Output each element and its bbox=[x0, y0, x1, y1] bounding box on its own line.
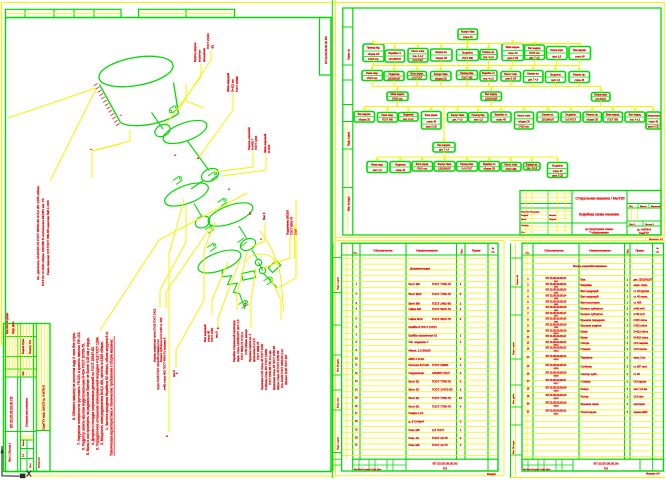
svg-text:Ст3 ГОСТ: Ст3 ГОСТ bbox=[412, 77, 423, 80]
svg-text:Привод бар.: Привод бар. bbox=[460, 163, 474, 166]
svg-text:ГОСТ 10-75: ГОСТ 10-75 bbox=[432, 436, 448, 440]
svg-text:Инв. № дубл.: Инв. № дубл. bbox=[337, 358, 340, 372]
svg-text:узел 2 СБ: узел 2 СБ bbox=[648, 126, 659, 129]
svg-text:Резь М8: Резь М8 bbox=[409, 428, 420, 432]
svg-text:сборка СБ: сборка СБ bbox=[586, 119, 598, 122]
svg-text:Подвеска: Подвеска bbox=[389, 73, 400, 76]
svg-text:Блок управ.: Блок управ. bbox=[425, 114, 438, 117]
svg-text:Крышка задняя: Крышка задняя bbox=[581, 324, 602, 328]
svg-text:Эл.двигат.: Эл.двигат. bbox=[565, 114, 577, 117]
svg-text:дет. 7 ч.3: дет. 7 ч.3 bbox=[452, 119, 463, 122]
svg-text:КП 23.05.09.00.07: КП 23.05.09.00.07 bbox=[546, 312, 567, 315]
svg-text:сборка СБ: сборка СБ bbox=[483, 168, 495, 171]
svg-text:гр. 4-ИТФ-5: гр. 4-ИТФ-5 bbox=[637, 228, 651, 232]
svg-text:КП 23.05.09.00.00 ВО: КП 23.05.09.00.00 ВО bbox=[324, 35, 328, 64]
svg-text:Насос слив.: Насос слив. bbox=[504, 73, 518, 76]
svg-text:КП 23.05.09.00.02: КП 23.05.09.00.02 bbox=[546, 341, 567, 344]
svg-text:Пружина: Пружина bbox=[581, 355, 593, 359]
svg-text:Корпус бака: Корпус бака bbox=[451, 114, 465, 117]
svg-text:8. Обкатать машину на холостом: 8. Обкатать машину на холостом ходу 2 ча… bbox=[72, 332, 76, 420]
svg-text:z=40 m=2: z=40 m=2 bbox=[634, 313, 646, 316]
svg-text:Планка: Планка bbox=[581, 347, 591, 351]
svg-text:Копировал: Копировал bbox=[39, 456, 41, 468]
svg-text:Бак наружн.: Бак наружн. bbox=[573, 49, 587, 52]
svg-text:резина МБС: резина МБС bbox=[634, 411, 648, 414]
svg-text:КП 23.05.09.00.04: КП 23.05.09.00.04 bbox=[546, 355, 567, 358]
svg-text:Наименование: Наименование bbox=[416, 249, 438, 253]
svg-text:поз. 4 л.2: поз. 4 л.2 bbox=[630, 119, 641, 122]
svg-text:ГОСТ 7796-70: ГОСТ 7796-70 bbox=[432, 396, 451, 400]
svg-text:Т-образование: Т-образование bbox=[589, 231, 609, 235]
svg-text:180205 ГОСТ: 180205 ГОСТ bbox=[432, 371, 450, 375]
svg-text:лист 1,5: лист 1,5 bbox=[551, 79, 561, 82]
svg-text:КП 23.05.09.00.00: КП 23.05.09.00.00 bbox=[546, 402, 567, 405]
svg-text:КП 23.05.09.00.03: КП 23.05.09.00.03 bbox=[546, 289, 567, 292]
svg-text:7. Наружные поверхности грунто: 7. Наружные поверхности грунтовать ГФ-02… bbox=[77, 331, 81, 445]
svg-text:Ст3 сварная: Ст3 сварная bbox=[634, 342, 649, 345]
svg-text:Стиральная машина / МыТ90: Стиральная машина / МыТ90 bbox=[575, 197, 624, 201]
svg-text:1. Частота вращения барабана 5: 1. Частота вращения барабана 50 об/мин, … bbox=[105, 331, 109, 430]
svg-text:лист 1,5 мм: лист 1,5 мм bbox=[634, 388, 648, 391]
svg-text:Корпус бака: Корпус бака bbox=[438, 163, 452, 166]
svg-text:сборка СБ: сборка СБ bbox=[518, 121, 530, 124]
svg-text:поз. 4 л.2: поз. 4 л.2 bbox=[413, 55, 424, 58]
svg-text:Уплотнение: Уплотнение bbox=[581, 410, 597, 414]
svg-text:КП 23.05.09.00.05: КП 23.05.09.00.05 bbox=[546, 364, 567, 367]
svg-text:ст. 45 поков.: ст. 45 поков. bbox=[634, 296, 649, 299]
svg-text:Клапан вп.: Клапан вп. bbox=[527, 73, 539, 76]
svg-text:Болт М10: Болт М10 bbox=[409, 292, 422, 296]
svg-text:Винт М6: Винт М6 bbox=[409, 302, 421, 306]
svg-text:Клапан вп.: Клапан вп. bbox=[542, 114, 554, 117]
svg-text:Крышка передняя: Крышка передняя bbox=[581, 318, 606, 322]
svg-text:ГОСТ 10-75: ГОСТ 10-75 bbox=[432, 443, 448, 447]
svg-text:3. Передаточное отношение клин: 3. Передаточное отношение клиноременной … bbox=[96, 336, 100, 450]
svg-text:Взам. инв.: Взам. инв. bbox=[338, 397, 340, 408]
svg-text:z=80 m=2: z=80 m=2 bbox=[634, 307, 646, 310]
svg-text:Пров.: Пров. bbox=[521, 219, 527, 221]
svg-text:Шпонка 8х7х40: Шпонка 8х7х40 bbox=[409, 363, 430, 367]
svg-text:Насос слив.: Насос слив. bbox=[411, 50, 425, 53]
svg-text:Масштаб: Масштаб bbox=[651, 206, 661, 208]
svg-text:Н.контр.: Н.контр. bbox=[521, 225, 529, 227]
svg-text:КП 23.05.09.00.03: КП 23.05.09.00.03 bbox=[546, 347, 567, 350]
svg-text:Шкив ведом.: Шкив ведом. bbox=[506, 46, 520, 49]
svg-text:D=315: D=315 bbox=[267, 144, 271, 153]
svg-text:Ст3 полоса: Ст3 полоса bbox=[634, 348, 648, 351]
svg-text:Листов 1: Листов 1 bbox=[645, 224, 655, 226]
svg-text:ГОСТ 7798-70: ГОСТ 7798-70 bbox=[432, 292, 451, 296]
svg-text:Изм Лист № докум. Подп. Дата: Изм Лист № докум. Подп. Дата bbox=[354, 468, 382, 471]
svg-text:Манж. 1.2-30х52: Манж. 1.2-30х52 bbox=[409, 349, 431, 353]
svg-text:КП 23.05.09.00.07: КП 23.05.09.00.07 bbox=[546, 379, 567, 382]
svg-text:узел 2 СБ: узел 2 СБ bbox=[507, 57, 518, 60]
svg-text:СЧ15 литье: СЧ15 литье bbox=[634, 319, 648, 322]
svg-text:сталь 45: сталь 45 bbox=[553, 170, 563, 173]
svg-text:стр.: стр. bbox=[491, 252, 495, 254]
svg-text:Блок управ.: Блок управ. bbox=[410, 73, 423, 76]
svg-text:Болт М8: Болт М8 bbox=[409, 282, 421, 286]
svg-text:д. 8 СтЗкп4: д. 8 СтЗкп4 bbox=[409, 420, 425, 424]
svg-text:Шплинт 2х20 ГОСТ 397: Шплинт 2х20 ГОСТ 397 bbox=[284, 354, 288, 385]
svg-text:сталь 45: сталь 45 bbox=[508, 52, 518, 55]
svg-text:Эл.двигат.: Эл.двигат. bbox=[552, 165, 564, 168]
svg-text:Винт 25: Винт 25 bbox=[409, 388, 420, 392]
svg-text:Подвеска: Подвеска bbox=[403, 114, 414, 117]
svg-text:Справ. №: Справ. № bbox=[516, 274, 519, 285]
svg-text:Вал II: Вал II bbox=[262, 212, 266, 220]
svg-text:КП 23.05.09.00.06: КП 23.05.09.00.06 bbox=[546, 306, 567, 309]
svg-text:Вновь разрабатываемые: Вновь разрабатываемые bbox=[573, 264, 607, 268]
svg-text:Н.контр. Утв.: Н.контр. Утв. bbox=[29, 339, 32, 354]
svg-text:поз. 4 л.2: поз. 4 л.2 bbox=[527, 167, 538, 170]
svg-text:0016: 0016 bbox=[554, 375, 560, 377]
svg-text:Стиральная машина: Стиральная машина bbox=[25, 398, 29, 427]
svg-text:Ремень пр.: Ремень пр. bbox=[586, 114, 599, 117]
svg-text:Привод бар.: Привод бар. bbox=[471, 114, 485, 117]
svg-text:Вал ведущ.: Вал ведущ. bbox=[629, 114, 642, 117]
svg-text:Крышка люка: Крышка люка bbox=[581, 402, 600, 406]
svg-text:ГОСТ 380: ГОСТ 380 bbox=[462, 57, 473, 60]
svg-text:Болт 20: Болт 20 bbox=[409, 380, 420, 384]
svg-text:втулочно-: втулочно- bbox=[198, 49, 202, 62]
svg-text:ГОСТ 7798-70: ГОСТ 7798-70 bbox=[432, 404, 451, 408]
svg-text:Эл. двигатель 4А100S4 УЗ ГОСТ: Эл. двигатель 4А100S4 УЗ ГОСТ 28330-89 N… bbox=[36, 186, 40, 280]
svg-text:12Х18Н10Т: 12Х18Н10Т bbox=[485, 97, 498, 100]
svg-text:КП 23.05.09.00.02: КП 23.05.09.00.02 bbox=[546, 283, 567, 286]
svg-text:лист 1,5: лист 1,5 bbox=[474, 119, 484, 122]
svg-text:ГОСТ 380: ГОСТ 380 bbox=[462, 76, 473, 79]
svg-text:12Х18Н10Т: 12Х18Н10Т bbox=[388, 77, 401, 80]
svg-text:Барабан ст.: Барабан ст. bbox=[483, 163, 496, 166]
svg-text:12Х18Н10Т: 12Х18Н10Т bbox=[438, 168, 451, 171]
svg-text:поз. 4 л.2: поз. 4 л.2 bbox=[483, 56, 494, 59]
svg-text:ст. 65Г лист: ст. 65Г лист bbox=[634, 365, 648, 368]
svg-text:Вал ведущ.: Вал ведущ. bbox=[485, 93, 498, 96]
svg-text:поз. 4 л.2: поз. 4 л.2 bbox=[403, 118, 414, 121]
svg-text:Шкив ведом.: Шкив ведом. bbox=[390, 93, 404, 96]
svg-text:Рама сварная Ст3 ГОСТ 380-88 ш: Рама сварная Ст3 ГОСТ 380-88 швеллер №8 … bbox=[46, 200, 50, 275]
svg-text:Разраб.: Разраб. bbox=[521, 215, 529, 217]
svg-text:Масса: Масса bbox=[640, 206, 647, 208]
svg-text:дет. 7 ч.3: дет. 7 ч.3 bbox=[439, 149, 450, 152]
svg-text:ПЗ: ПЗ bbox=[604, 466, 608, 470]
svg-text:Корпус бака: Корпус бака bbox=[461, 31, 475, 34]
svg-text:-93: -93 bbox=[211, 45, 215, 49]
svg-text:Утв.: Утв. bbox=[521, 232, 525, 234]
svg-text:Лист: Лист bbox=[30, 463, 32, 468]
svg-text:Рd 5 Вл п=1500 об/мин 220/380: Рd 5 Вл п=1500 об/мин 220/380 В исполнен… bbox=[41, 198, 45, 286]
svg-text:Опора: Опора bbox=[581, 341, 590, 345]
svg-text:D=112 мм: D=112 мм bbox=[231, 79, 235, 92]
svg-text:Болт 20: Болт 20 bbox=[409, 396, 420, 400]
svg-text:нерж. сталь: нерж. сталь bbox=[634, 284, 648, 287]
svg-text:дет. 7 ч.3: дет. 7 ч.3 bbox=[529, 56, 540, 59]
svg-text:ГОСТ 17473-80: ГОСТ 17473-80 bbox=[432, 388, 453, 392]
svg-text:ГОСТ 21424: ГОСТ 21424 bbox=[206, 33, 210, 49]
svg-text:Подп. и дата: Подп. и дата bbox=[338, 436, 340, 450]
svg-text:сборка СБ: сборка СБ bbox=[435, 77, 447, 80]
svg-text:12Х18Н10Т: 12Х18Н10Т bbox=[541, 119, 554, 122]
svg-text:Барабан: Барабан bbox=[581, 283, 593, 287]
svg-text:Инв. № подл.: Инв. № подл. bbox=[512, 440, 515, 454]
svg-text:пров. 2 кл.: пров. 2 кл. bbox=[634, 356, 647, 359]
svg-text:Насос слив.: Насос слив. bbox=[517, 114, 531, 117]
svg-text:Ст3 ГОСТ: Ст3 ГОСТ bbox=[565, 119, 576, 122]
svg-text:Барабан ст.: Барабан ст. bbox=[388, 52, 401, 55]
svg-text:Наименование: Наименование bbox=[589, 249, 611, 253]
svg-text:Ст3 ГОСТ: Ст3 ГОСТ bbox=[595, 98, 606, 101]
svg-text:Инв. дубл.: Инв. дубл. bbox=[513, 393, 515, 404]
svg-text:Гайка М8: Гайка М8 bbox=[409, 307, 422, 311]
svg-text:Вал ведущий: Вал ведущий bbox=[581, 289, 599, 293]
svg-text:КП 23.05.09.00.05: КП 23.05.09.00.05 bbox=[546, 300, 567, 303]
svg-text:Ст3 лист: Ст3 лист bbox=[634, 395, 645, 398]
svg-text:Бак наружн.: Бак наружн. bbox=[358, 113, 372, 116]
svg-text:D=112 литье: D=112 литье bbox=[634, 331, 649, 334]
svg-text:дет. 12Х18Н10Т: дет. 12Х18Н10Т bbox=[634, 278, 653, 281]
svg-text:сталь 45: сталь 45 bbox=[648, 121, 658, 124]
svg-text:0018: 0018 bbox=[554, 390, 560, 392]
svg-text:Ст3 ГОСТ: Ст3 ГОСТ bbox=[462, 168, 473, 171]
svg-text:Разраб. Пров.: Разраб. Пров. bbox=[22, 338, 25, 354]
svg-text:5. Валы и оси проверить на рад: 5. Валы и оси проверить на радиальное би… bbox=[86, 337, 90, 455]
svg-text:0013: 0013 bbox=[554, 350, 560, 352]
svg-text:4. Допуски и посадки сопрягаем: 4. Допуски и посадки сопрягаемых деталей… bbox=[91, 346, 95, 445]
svg-text:Поз.: Поз. bbox=[354, 253, 358, 255]
svg-text:поз.5: поз.5 bbox=[172, 370, 176, 377]
svg-text:КП 23.05.09.00.08: КП 23.05.09.00.08 bbox=[546, 387, 567, 390]
svg-text:сборка СБ: сборка СБ bbox=[358, 118, 370, 121]
svg-text:ГОСТ 380: ГОСТ 380 bbox=[506, 168, 517, 171]
svg-text:ПЗ: ПЗ bbox=[443, 466, 447, 470]
svg-text:0019: 0019 bbox=[554, 398, 560, 400]
svg-text:СЧ15 отл.: СЧ15 отл. bbox=[417, 168, 428, 171]
svg-text:Стяжка: Стяжка bbox=[581, 379, 591, 383]
svg-text:Ремень пр.: Ремень пр. bbox=[573, 73, 586, 76]
svg-text:Шкив: Шкив bbox=[581, 335, 589, 339]
svg-text:0017: 0017 bbox=[554, 383, 560, 385]
svg-text:СЧ15 отл.: СЧ15 отл. bbox=[392, 97, 403, 100]
svg-text:ГОСТ 7798-70: ГОСТ 7798-70 bbox=[432, 282, 451, 286]
svg-text:2 шт: 2 шт bbox=[294, 228, 298, 235]
svg-text:КП 23.05.09.00.00 ПЗ: КП 23.05.09.00.00 ПЗ bbox=[10, 397, 14, 428]
svg-text:Приме-: Приме- bbox=[472, 249, 481, 253]
svg-text:Подп. и дата: Подп. и дата bbox=[348, 131, 351, 146]
svg-text:Техническая характеристика и т: Техническая характеристика и технические… bbox=[110, 339, 114, 456]
svg-text:Подп. и дата: Подп. и дата bbox=[338, 276, 340, 290]
svg-text:КП 23.05.09.00.08: КП 23.05.09.00.08 bbox=[546, 318, 567, 321]
svg-text:Клапан вп.: Клапан вп. bbox=[435, 51, 447, 54]
svg-text:Лит.: Лит. bbox=[22, 371, 25, 376]
svg-text:Приме-: Приме- bbox=[636, 249, 645, 253]
svg-text:узел 2 СБ: узел 2 СБ bbox=[505, 78, 516, 81]
svg-text:Бак наружн.: Бак наружн. bbox=[437, 144, 451, 147]
svg-text:ГОСТ 20889: ГОСТ 20889 bbox=[235, 76, 239, 92]
svg-text:Барабан ст.: Барабан ст. bbox=[495, 114, 508, 117]
svg-text:Колесо зубчатое: Колесо зубчатое bbox=[581, 306, 604, 310]
svg-text:Изм Лист № докум.: Изм Лист № докум. bbox=[521, 211, 540, 214]
svg-text:Резь 10: Резь 10 bbox=[409, 436, 420, 440]
svg-text:Подшипник: Подшипник bbox=[409, 371, 425, 375]
svg-text:Вал ведомый: Вал ведомый bbox=[581, 295, 599, 299]
svg-text:Рамка п.13: Рамка п.13 bbox=[409, 411, 424, 415]
svg-text:ГОСТ 380: ГОСТ 380 bbox=[607, 119, 618, 122]
svg-text:Шайба 8 ГОСТ 11371: Шайба 8 ГОСТ 11371 bbox=[409, 325, 438, 329]
svg-text:Справ. №: Справ. № bbox=[348, 49, 351, 60]
svg-text:0020: 0020 bbox=[554, 405, 560, 407]
svg-text:Подп. Дата: Подп. Дата bbox=[12, 321, 15, 334]
svg-text:Инв. № подл.: Инв. № подл. bbox=[348, 196, 351, 211]
svg-text:Формат А4: Формат А4 bbox=[646, 472, 660, 476]
svg-text:Вал-шестерня: Вал-шестерня bbox=[581, 301, 601, 305]
svg-text:СЧ15 литье: СЧ15 литье bbox=[634, 325, 648, 328]
svg-text:Шайба пружинная 10: Шайба пружинная 10 bbox=[409, 333, 438, 337]
svg-text:КП 23.05.09.00.09: КП 23.05.09.00.09 bbox=[546, 324, 567, 327]
svg-text:КП 23.05.09.00.06: КП 23.05.09.00.06 bbox=[546, 372, 567, 375]
svg-text:Петров: Петров bbox=[549, 219, 557, 221]
svg-text:Насос слив.: Насос слив. bbox=[504, 164, 518, 167]
svg-text:Обозначение: Обозначение bbox=[544, 249, 563, 253]
svg-text:КП 23.05.09.00.00: КП 23.05.09.00.00 bbox=[433, 461, 458, 465]
svg-text:СЧ15 отл.: СЧ15 отл. bbox=[367, 77, 378, 80]
svg-text:КП 23.05.09.00.01: КП 23.05.09.00.01 bbox=[546, 277, 567, 280]
svg-text:Гайка М10: Гайка М10 bbox=[409, 317, 423, 321]
svg-text:Рычаг: Рычаг bbox=[581, 394, 589, 398]
svg-text:Подп. и дата: Подп. и дата bbox=[513, 341, 515, 355]
svg-text:оргстекло: оргстекло bbox=[634, 403, 646, 406]
svg-text:КП 23.05.09.00.00: КП 23.05.09.00.00 bbox=[546, 329, 567, 332]
svg-text:ст. 45 кругляк: ст. 45 кругляк bbox=[634, 290, 650, 293]
svg-text:Шкив ведом.: Шкив ведом. bbox=[606, 114, 620, 117]
svg-text:Изм Лист № докум.: Изм Лист № докум. bbox=[6, 312, 9, 334]
svg-text:КП 23.05.09.00.01: КП 23.05.09.00.01 bbox=[546, 335, 567, 338]
svg-text:КП 23.05.09.00.01: КП 23.05.09.00.01 bbox=[546, 410, 567, 413]
svg-text:Собачка: Собачка bbox=[581, 364, 593, 368]
svg-text:2,5 ГОСТ: 2,5 ГОСТ bbox=[432, 428, 444, 432]
svg-text:Колесо зубчатое: Колесо зубчатое bbox=[581, 312, 604, 316]
svg-text:Резь М3: Резь М3 bbox=[409, 443, 420, 447]
svg-text:поз. 4 л.2: поз. 4 л.2 bbox=[483, 77, 494, 80]
svg-text:узел 2 СБ: узел 2 СБ bbox=[552, 174, 563, 177]
svg-text:ГОСТ 380: ГОСТ 380 bbox=[382, 119, 393, 122]
svg-text:Шкив: Шкив bbox=[581, 330, 589, 334]
svg-text:Блок управ.: Блок управ. bbox=[416, 163, 429, 166]
svg-text:узел 2 СБ: узел 2 СБ bbox=[426, 126, 437, 129]
svg-text:Рама свар.: Рама свар. bbox=[366, 72, 379, 75]
svg-text:ГОСТ 1050: ГОСТ 1050 bbox=[210, 327, 214, 342]
svg-text:Ст3 ГОСТ: Ст3 ГОСТ bbox=[413, 59, 424, 62]
svg-text:стр.: стр. bbox=[656, 252, 660, 254]
svg-text:Обозначение: Обозначение bbox=[373, 249, 392, 253]
svg-text:ГОСТ 5915-70: ГОСТ 5915-70 bbox=[432, 317, 451, 321]
svg-text:КП 23.05.09.00.09: КП 23.05.09.00.09 bbox=[546, 394, 567, 397]
svg-text:Эл.двигат.: Эл.двигат. bbox=[550, 73, 562, 76]
svg-text:Барабан ст.: Барабан ст. bbox=[482, 72, 495, 75]
svg-text:ГОСТ 5915-70: ГОСТ 5915-70 bbox=[432, 307, 451, 311]
svg-text:6. Редуктор залить маслом инду: 6. Редуктор залить маслом индустриальным… bbox=[82, 343, 86, 450]
svg-text:Иванов: Иванов bbox=[549, 215, 557, 217]
svg-text:МКБ 4 В-20: МКБ 4 В-20 bbox=[409, 357, 425, 361]
svg-text:лист 1,5: лист 1,5 bbox=[552, 55, 562, 58]
svg-text:Рама свар.: Рама свар. bbox=[371, 163, 384, 166]
svg-text:Изм Лист № докум. Подп. Дата: Изм Лист № докум. Подп. Дата bbox=[523, 468, 551, 471]
svg-text:Кожух: Кожух bbox=[581, 387, 590, 391]
svg-text:СамГТУ: СамГТУ bbox=[639, 231, 649, 235]
svg-text:Эл.двигат.: Эл.двигат. bbox=[462, 51, 474, 54]
svg-text:КП 23.05.09.00.00: КП 23.05.09.00.00 bbox=[594, 461, 619, 465]
svg-text:сборка СБ: сборка СБ bbox=[368, 53, 380, 56]
svg-text:Лист 1 Листов 1: Лист 1 Листов 1 bbox=[8, 442, 12, 462]
svg-text:поз.8: поз.8 bbox=[215, 331, 219, 338]
svg-text:ГОСТ 23360: ГОСТ 23360 bbox=[432, 363, 449, 367]
svg-text:Кол.: Кол. bbox=[461, 248, 464, 253]
svg-text:2. Мощность электродвигателя N: 2. Мощность электродвигателя N=3,0 кВт, … bbox=[100, 341, 104, 445]
svg-text:лист 1,5: лист 1,5 bbox=[373, 169, 383, 172]
svg-text:ГОСТ 1491-80: ГОСТ 1491-80 bbox=[432, 302, 451, 306]
svg-text:СЧ15 отл.: СЧ15 отл. bbox=[529, 52, 540, 55]
svg-text:сталь 45: сталь 45 bbox=[496, 119, 506, 122]
svg-text:Корпус бака: Корпус бака bbox=[434, 73, 448, 76]
svg-text:0021: 0021 bbox=[554, 413, 560, 415]
svg-text:сборка СБ: сборка СБ bbox=[435, 57, 447, 60]
svg-text:Кофейная схема членения: Кофейная схема членения bbox=[579, 213, 619, 217]
svg-text:Лист 1: Лист 1 bbox=[629, 224, 636, 226]
svg-text:Формат: Формат bbox=[487, 473, 497, 476]
svg-text:0014: 0014 bbox=[554, 359, 560, 361]
svg-text:Привод бар.: Привод бар. bbox=[460, 72, 474, 75]
svg-text:СЧ15 отл.: СЧ15 отл. bbox=[368, 58, 379, 61]
svg-text:Бак: Бак bbox=[581, 277, 587, 281]
svg-text:Клапан вп.: Клапан вп. bbox=[526, 163, 538, 166]
svg-text:сталь 45: сталь 45 bbox=[574, 79, 584, 82]
svg-text:Подвеска: Подвеска bbox=[395, 163, 406, 166]
svg-text:ст. 40Х: ст. 40Х bbox=[634, 302, 642, 305]
svg-text:Болт 30: Болт 30 bbox=[409, 404, 420, 408]
svg-text:сталь 45: сталь 45 bbox=[463, 36, 473, 39]
svg-text:Сектор зубч.: Сектор зубч. bbox=[581, 372, 598, 376]
svg-text:Кол.: Кол. bbox=[627, 248, 630, 253]
svg-text:СЧ15 отл.: СЧ15 отл. bbox=[519, 126, 530, 129]
svg-text:Вал ведущ.: Вал ведущ. bbox=[528, 47, 541, 50]
svg-text:сталь 45: сталь 45 bbox=[395, 169, 405, 172]
svg-text:сталь 45: сталь 45 bbox=[426, 120, 436, 123]
svg-text:Муфта упругая: Муфта упругая bbox=[193, 42, 197, 62]
svg-text:Опора корп.: Опора корп. bbox=[647, 114, 661, 117]
svg-text:Опора корп.: Опора корп. bbox=[594, 94, 608, 97]
svg-text:Опора корп.: Опора корп. bbox=[550, 49, 564, 52]
svg-text:ГОСТ 1284: ГОСТ 1284 bbox=[254, 135, 258, 150]
svg-text:ст. 45: ст. 45 bbox=[634, 373, 641, 376]
svg-text:Привод бар.: Привод бар. bbox=[367, 47, 381, 50]
svg-text:Масса: Масса bbox=[23, 439, 25, 446]
svg-text:12Х18Н10Т: 12Х18Н10Т bbox=[388, 58, 401, 61]
svg-text:Ст3 пруток: Ст3 пруток bbox=[634, 380, 648, 383]
svg-text:Документация: Документация bbox=[410, 266, 430, 270]
svg-text:Рама свар.: Рама свар. bbox=[381, 114, 394, 117]
svg-text:ГОСТ 7798-70: ГОСТ 7798-70 bbox=[432, 380, 451, 384]
svg-text:Об. подшипн.?: Об. подшипн.? bbox=[409, 340, 429, 344]
svg-text:Поз.: Поз. bbox=[526, 253, 530, 255]
svg-text:Ремень пр.: Ремень пр. bbox=[482, 51, 495, 54]
svg-text:сталь 45: сталь 45 bbox=[575, 55, 585, 58]
svg-text:Шкив ведущий: Шкив ведущий bbox=[226, 73, 230, 92]
svg-text:D=315 литье: D=315 литье bbox=[634, 336, 649, 339]
svg-text:Лит.: Лит. bbox=[629, 206, 633, 208]
svg-text:0015: 0015 bbox=[554, 368, 560, 370]
svg-text:дет. 7 ч.3: дет. 7 ч.3 bbox=[528, 79, 539, 82]
svg-text:СамГТУ каф. МАХП гр. 4-ИТФ-5: СамГТУ каф. МАХП гр. 4-ИТФ-5 bbox=[42, 385, 46, 430]
